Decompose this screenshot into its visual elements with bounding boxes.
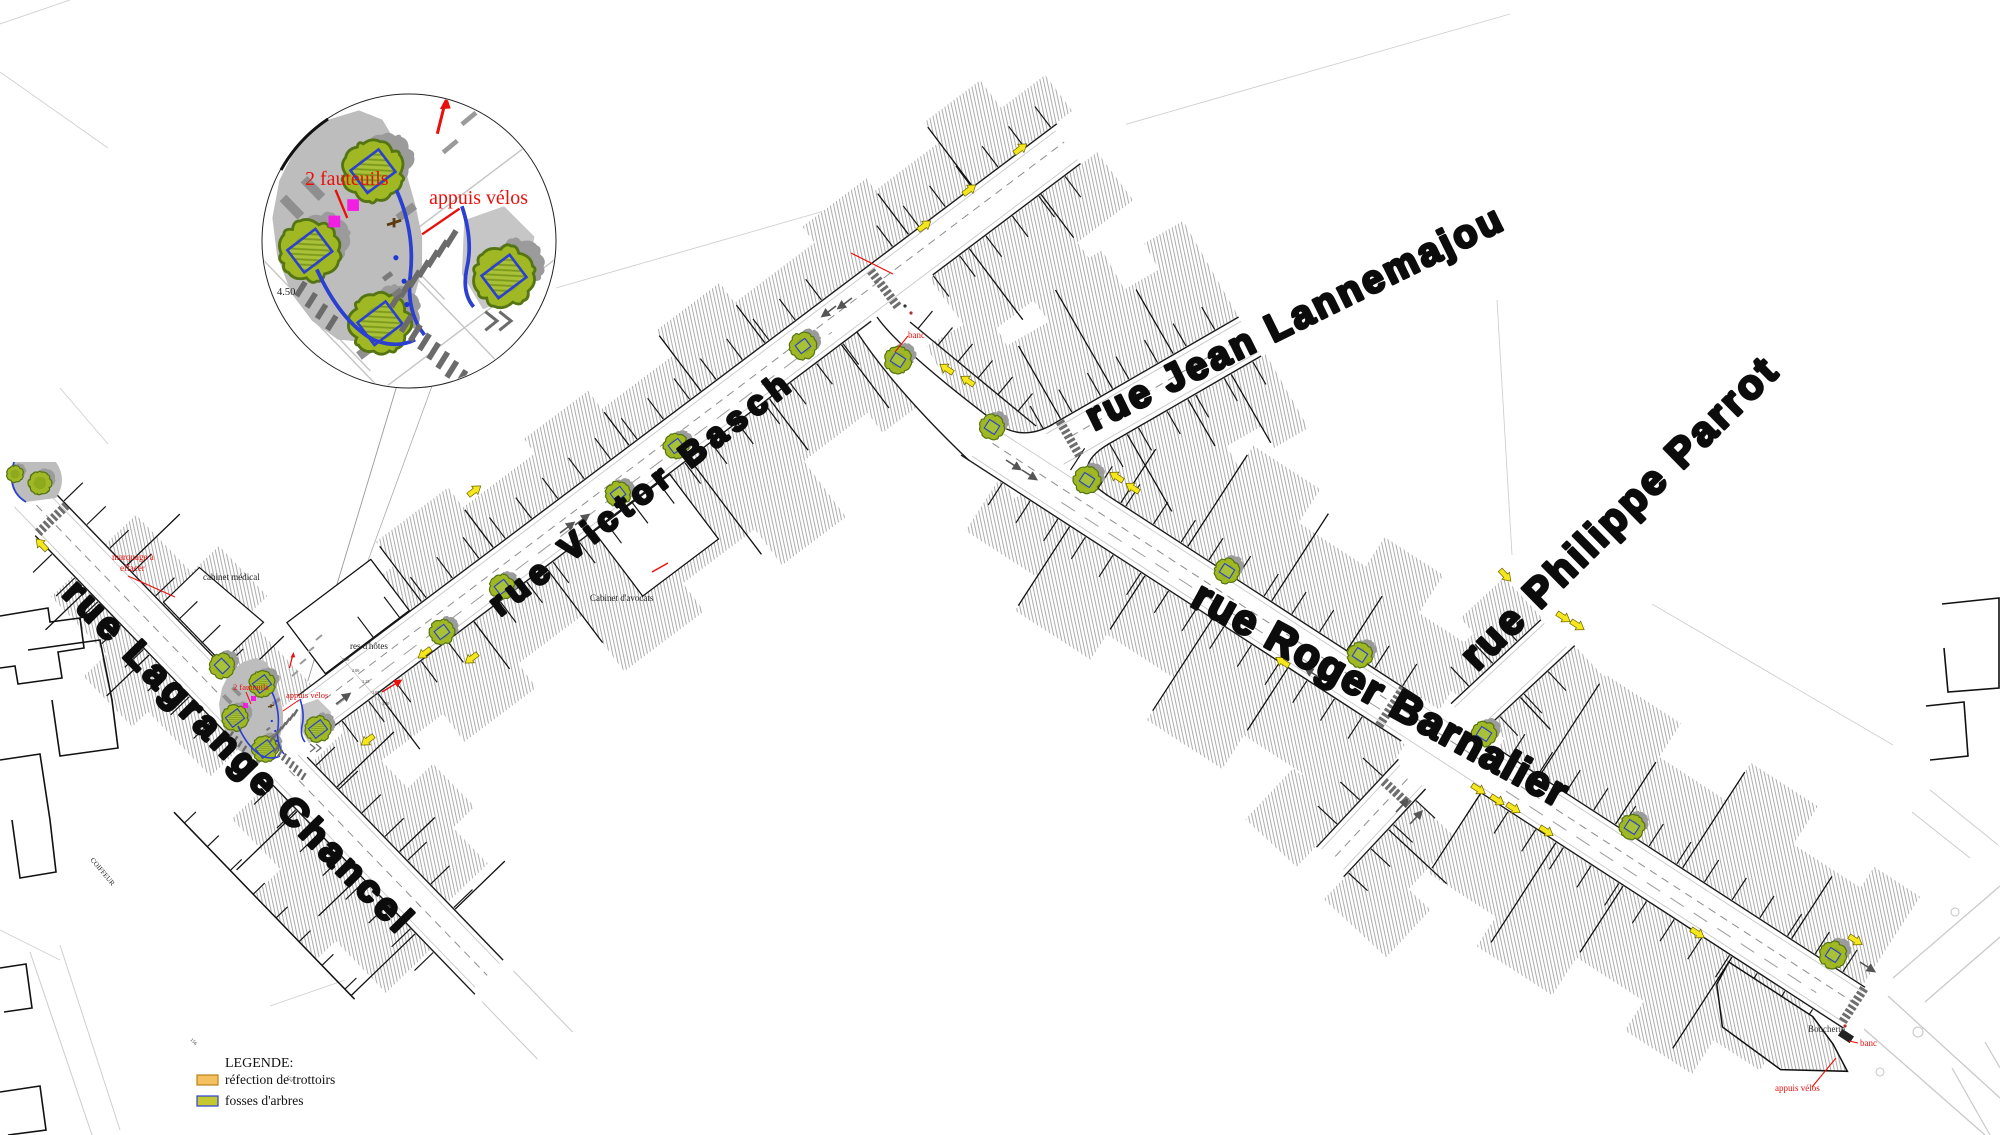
svg-text:LEGENDE:: LEGENDE: bbox=[225, 1056, 293, 1071]
svg-text:3.25: 3.25 bbox=[362, 679, 369, 684]
svg-text:effacer: effacer bbox=[120, 563, 145, 573]
svg-text:fosses d'arbres: fosses d'arbres bbox=[225, 1093, 304, 1108]
svg-text:2 fauteuils: 2 fauteuils bbox=[233, 682, 269, 692]
svg-text:banc: banc bbox=[1860, 1038, 1877, 1048]
svg-text:réfection de trottoirs: réfection de trottoirs bbox=[225, 1072, 335, 1087]
svg-text:2.00: 2.00 bbox=[352, 668, 359, 673]
svg-text:appuis vélos: appuis vélos bbox=[286, 690, 328, 700]
svg-text:res d'hôtes: res d'hôtes bbox=[350, 641, 388, 651]
svg-text:marquage à: marquage à bbox=[112, 552, 154, 562]
svg-text:banc: banc bbox=[908, 330, 925, 340]
svg-text:Boucherie: Boucherie bbox=[1808, 1024, 1845, 1034]
svg-text:Cabinet d'avocats: Cabinet d'avocats bbox=[590, 593, 654, 603]
svg-text:1.80: 1.80 bbox=[382, 701, 389, 706]
svg-text:cabinet médical: cabinet médical bbox=[203, 572, 260, 582]
